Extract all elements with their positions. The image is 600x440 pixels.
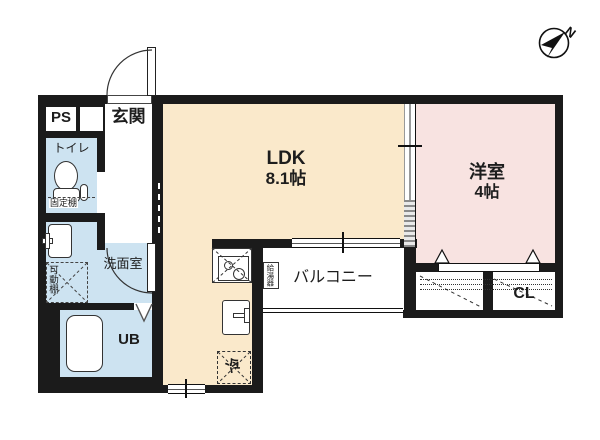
water-heater-label: 給湯器: [266, 264, 274, 287]
compass-north-label: N: [562, 23, 579, 41]
balcony-label: バルコニー: [270, 270, 396, 287]
western-room-name: 洋室: [469, 162, 505, 182]
washroom-label: 洗面室: [96, 257, 150, 271]
floor-plan: N PS 玄関 トイレ 固定棚 洗面室 可動棚 UB LDK 8.1帖 洋室 4…: [0, 0, 600, 440]
front-door-threshold: [107, 95, 152, 104]
front-door-arc: [107, 50, 152, 95]
kitchen-faucet-icon: [244, 308, 250, 323]
closet-pipe-line: [420, 279, 552, 280]
ldk-size: 8.1帖: [266, 169, 307, 188]
sliding-door-line: [409, 104, 411, 200]
front-door-leaf: [147, 47, 156, 96]
wall-closet-stub-right: [540, 263, 556, 272]
sliding-door-pocket: [404, 200, 416, 247]
wall-ldk-balcony-left: [212, 239, 292, 248]
bathroom-label: UB: [113, 332, 145, 348]
wall-bottom-right: [403, 310, 563, 318]
closet-label: CL: [508, 286, 540, 303]
fixed-shelf-label: 固定棚: [49, 199, 78, 208]
wall-closet-divider: [483, 272, 493, 310]
toilet-label: トイレ: [48, 142, 95, 155]
wall-kitchen-vertical: [252, 239, 263, 393]
wall-toilet-bottom: [46, 213, 105, 222]
toilet-bowl-icon: [54, 161, 78, 191]
wall-partition-lower: [404, 247, 416, 318]
balcony-window: [292, 238, 400, 248]
wall-right: [555, 95, 563, 318]
ldk-bottom-window-tick: [185, 379, 187, 398]
toilet-paper-holder-icon: [80, 184, 88, 201]
meter-box: [80, 107, 103, 131]
sliding-door-tick: [398, 145, 422, 147]
closet-door-track: [438, 263, 540, 272]
bathtub-icon: [66, 315, 103, 372]
balcony-railing: [263, 308, 403, 313]
bath-door-opening: [134, 303, 152, 310]
wall-bath-bottom-pad: [46, 377, 152, 393]
compass-icon: [540, 29, 569, 59]
western-room-label: 洋室 4帖: [457, 163, 517, 202]
hall-ldk-opening-dashed: [158, 183, 160, 233]
toilet-door-opening: [97, 172, 105, 213]
stove-burner-icon: [224, 261, 233, 270]
stove-burner-icon: [233, 268, 245, 280]
ldk-name: LDK: [266, 148, 305, 169]
movable-shelf-label: 可動棚: [47, 265, 57, 294]
washbasin-faucet-icon: [45, 233, 50, 249]
entrance-label: 玄関: [105, 108, 152, 126]
balcony-window-tick: [342, 232, 344, 253]
ldk-label: LDK 8.1帖: [226, 149, 346, 189]
western-room-size: 4帖: [475, 184, 500, 201]
window-mid-line: [292, 243, 400, 244]
ps-label: PS: [46, 110, 76, 126]
wall-closet-stub-left: [416, 263, 438, 272]
